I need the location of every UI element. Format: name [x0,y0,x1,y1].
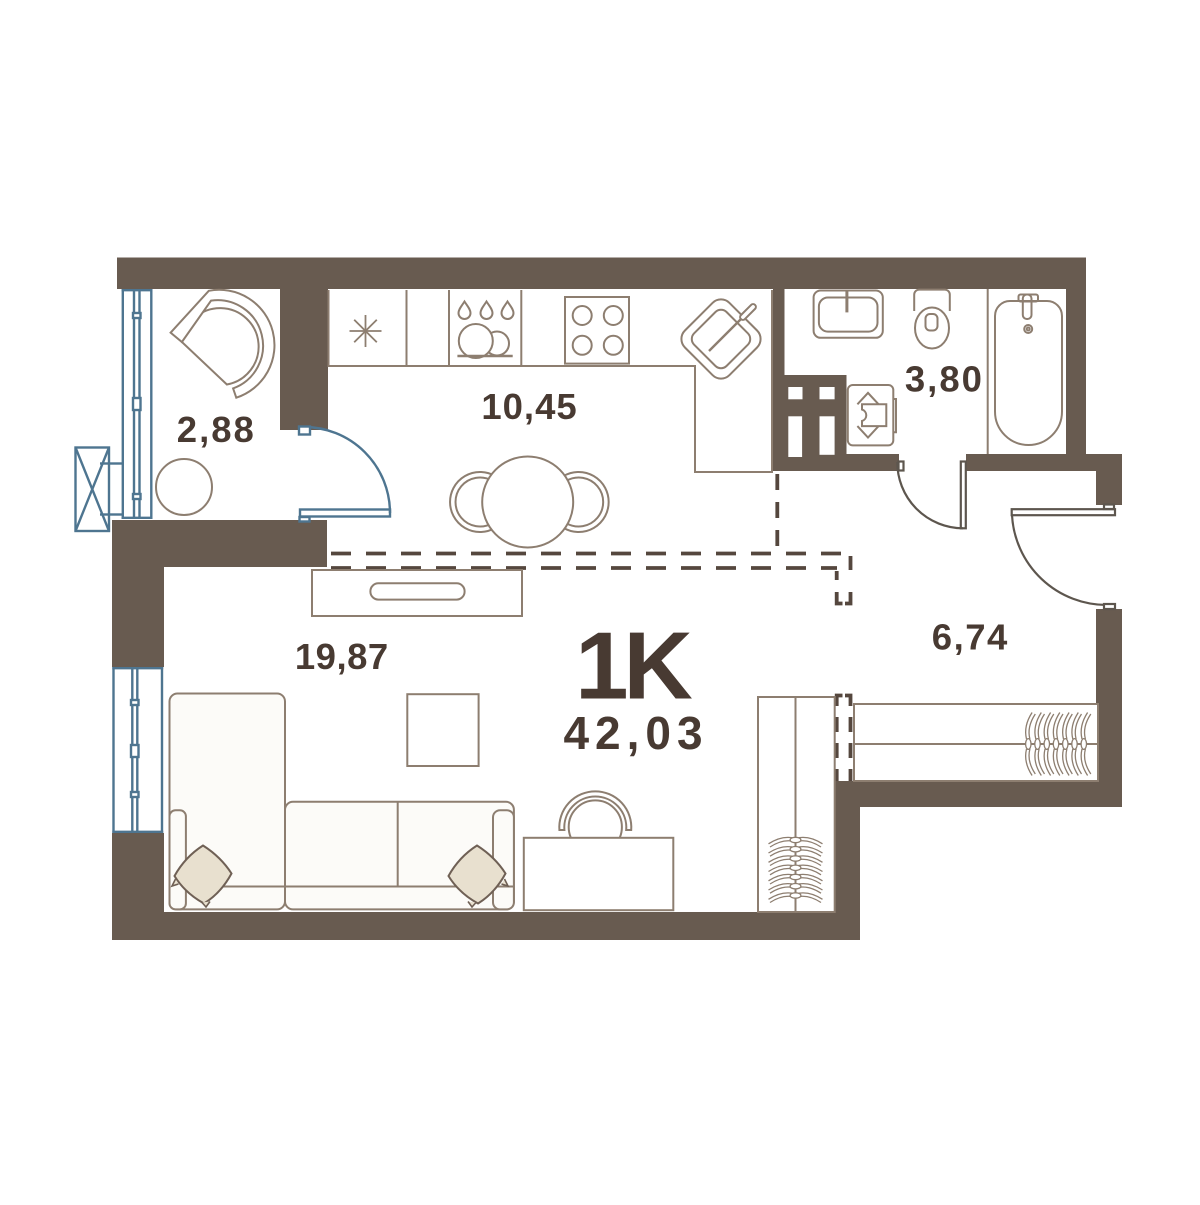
svg-text:1K: 1K [575,613,692,720]
svg-text:6,74: 6,74 [932,617,1009,658]
svg-text:42,03: 42,03 [563,707,708,759]
svg-text:19,87: 19,87 [295,636,389,677]
svg-text:3,80: 3,80 [905,358,984,399]
svg-text:10,45: 10,45 [481,386,577,427]
svg-text:2,88: 2,88 [177,409,256,450]
